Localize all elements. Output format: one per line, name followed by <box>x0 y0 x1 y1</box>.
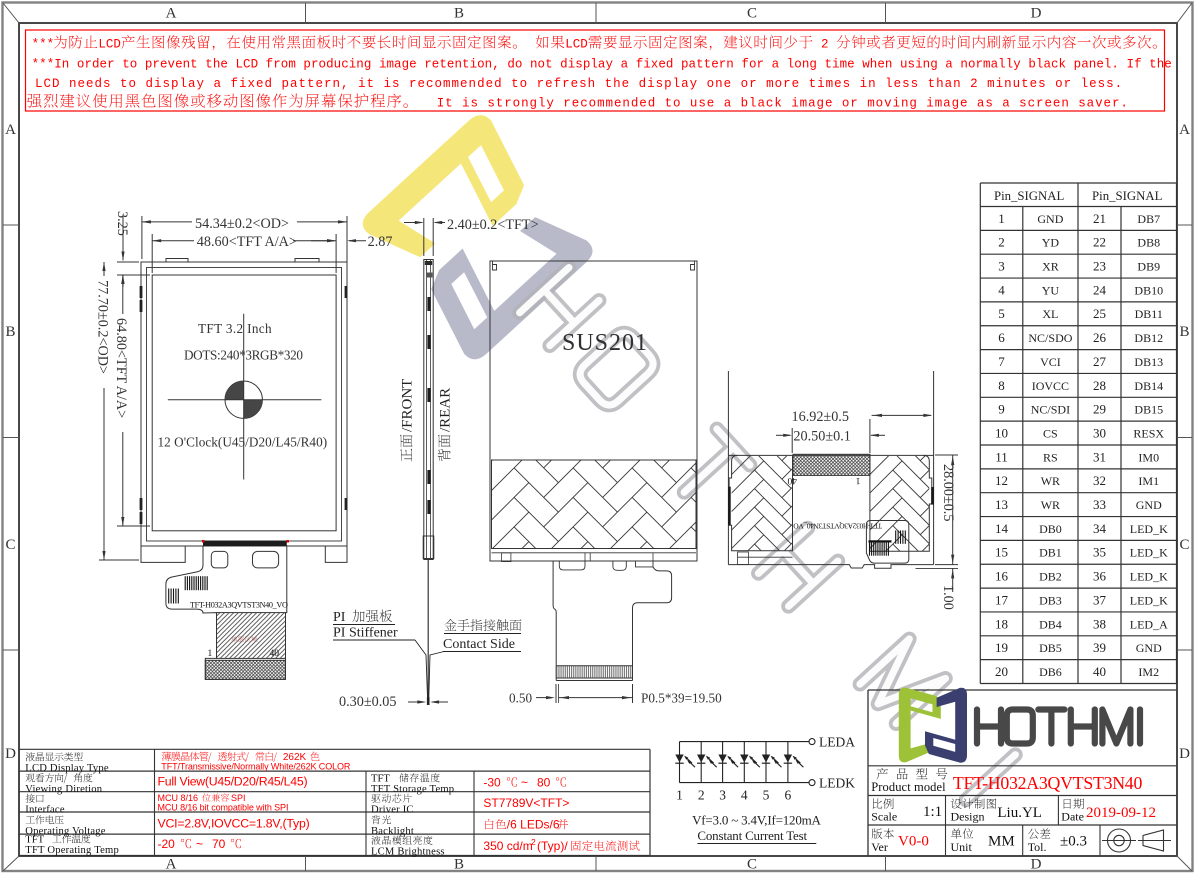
svg-text:35: 35 <box>1093 545 1106 560</box>
svg-text:D: D <box>1179 746 1190 762</box>
svg-text:WR: WR <box>1041 474 1060 488</box>
svg-text:Viewing Diretion: Viewing Diretion <box>25 784 103 795</box>
svg-text:Design: Design <box>951 810 985 824</box>
svg-text:2019-09-12: 2019-09-12 <box>1086 805 1156 821</box>
svg-text:28.00±0.5: 28.00±0.5 <box>940 464 956 521</box>
svg-text:17: 17 <box>995 592 1009 607</box>
svg-text:39: 39 <box>1093 640 1106 655</box>
svg-text:C: C <box>747 857 757 873</box>
svg-text:DB8: DB8 <box>1137 236 1160 250</box>
svg-text:LCM Brightness: LCM Brightness <box>371 846 445 857</box>
svg-text:/FRONT: /FRONT <box>400 379 416 432</box>
svg-text:D: D <box>5 746 16 762</box>
svg-text:3: 3 <box>719 788 726 803</box>
svg-text:DB2: DB2 <box>1039 570 1062 584</box>
svg-text:LED_K: LED_K <box>1130 522 1168 536</box>
svg-text:11: 11 <box>995 449 1008 464</box>
svg-text:16: 16 <box>995 569 1009 584</box>
svg-text:Tol.: Tol. <box>1028 840 1047 854</box>
svg-text:It is strongly recommended to: It is strongly recommended to use a blac… <box>437 97 1129 111</box>
svg-text:PI Stiffener: PI Stiffener <box>333 626 398 641</box>
svg-text:28: 28 <box>1093 378 1106 393</box>
svg-text:31: 31 <box>1093 449 1106 464</box>
svg-text:YU: YU <box>1042 283 1060 297</box>
svg-text:33: 33 <box>1093 497 1106 512</box>
svg-text:B: B <box>454 857 464 873</box>
svg-text:26: 26 <box>1093 330 1107 345</box>
svg-text:25: 25 <box>1093 306 1106 321</box>
svg-text:LEDK: LEDK <box>819 776 855 791</box>
svg-text:A: A <box>1179 122 1190 138</box>
svg-text:20.50±0.1: 20.50±0.1 <box>793 428 850 444</box>
svg-text:6: 6 <box>998 330 1005 345</box>
svg-text:IM1: IM1 <box>1138 474 1159 488</box>
svg-text:36: 36 <box>1093 569 1107 584</box>
svg-text:PI: PI <box>333 610 349 625</box>
svg-text:A: A <box>5 122 16 138</box>
svg-text:5: 5 <box>763 788 770 803</box>
svg-text:MCU 8/16: MCU 8/16 <box>158 793 201 803</box>
svg-text:/REAR: /REAR <box>438 388 454 432</box>
svg-text:SPI: SPI <box>231 793 246 803</box>
svg-text:IOVCC: IOVCC <box>1032 379 1069 393</box>
svg-text:/6 LEDs/6: /6 LEDs/6 <box>507 818 560 832</box>
svg-text:Constant Current Test: Constant Current Test <box>697 828 807 843</box>
svg-text:-30: -30 <box>483 776 504 790</box>
svg-text:YD: YD <box>1042 236 1060 250</box>
svg-text:DB13: DB13 <box>1134 355 1163 369</box>
svg-text:48.60<TFT A/A>: 48.60<TFT A/A> <box>197 234 297 250</box>
svg-text:ST7789V<TFT>: ST7789V<TFT> <box>483 796 569 810</box>
svg-text:1.00: 1.00 <box>940 585 956 610</box>
svg-text:Contact Side: Contact Side <box>443 637 515 652</box>
svg-text:DB0: DB0 <box>1039 522 1062 536</box>
svg-text:TFT 3.2 Inch: TFT 3.2 Inch <box>198 321 272 336</box>
svg-text:15: 15 <box>995 545 1008 560</box>
svg-text:4: 4 <box>998 282 1005 297</box>
svg-text:7: 7 <box>998 354 1005 369</box>
svg-text:Interface: Interface <box>25 804 65 815</box>
svg-text:NC/SDO: NC/SDO <box>1028 331 1072 345</box>
svg-text:Scale: Scale <box>871 810 897 824</box>
svg-text:MCU 8/16 bit compatible with S: MCU 8/16 bit compatible with SPI <box>158 803 289 813</box>
svg-text:2.87: 2.87 <box>368 234 393 250</box>
svg-text:CS: CS <box>1043 426 1058 440</box>
svg-text:TFT-H032A3QVTST3N40_VO: TFT-H032A3QVTST3N40_VO <box>793 522 882 531</box>
svg-text:8: 8 <box>998 378 1005 393</box>
svg-text:B: B <box>5 324 15 340</box>
svg-text:-20: -20 <box>158 837 179 851</box>
svg-text:DB1: DB1 <box>1039 546 1062 560</box>
svg-text:2: 2 <box>814 38 837 52</box>
svg-text:1:1: 1:1 <box>923 804 942 820</box>
svg-text:77.70±0.2<OD>: 77.70±0.2<OD> <box>95 280 111 374</box>
svg-text:9: 9 <box>998 402 1005 417</box>
svg-text:DB6: DB6 <box>1039 665 1062 679</box>
svg-text:14: 14 <box>995 521 1009 536</box>
svg-text:LED_K: LED_K <box>1130 570 1168 584</box>
svg-text:37: 37 <box>1093 592 1107 607</box>
svg-text:21: 21 <box>1093 211 1106 226</box>
svg-text:54.34±0.2<OD>: 54.34±0.2<OD> <box>195 216 289 232</box>
svg-text:LED_K: LED_K <box>1130 546 1168 560</box>
svg-text:***: *** <box>32 38 55 52</box>
svg-text:GND: GND <box>1136 641 1162 655</box>
svg-text:LCD: LCD <box>565 38 588 52</box>
svg-text:DB14: DB14 <box>1134 379 1163 393</box>
svg-text:Liu.YL: Liu.YL <box>997 805 1042 821</box>
svg-text:Driver IC: Driver IC <box>371 804 414 815</box>
svg-text:DB11: DB11 <box>1135 307 1163 321</box>
svg-text:~: ~ <box>521 776 528 790</box>
svg-text:5: 5 <box>998 306 1005 321</box>
svg-text:DB12: DB12 <box>1134 331 1163 345</box>
svg-text:3: 3 <box>998 259 1005 274</box>
svg-text:Backlight: Backlight <box>371 826 414 837</box>
svg-text:3.25: 3.25 <box>114 211 130 236</box>
svg-text:C: C <box>5 537 15 553</box>
svg-text:40: 40 <box>787 475 797 485</box>
svg-text:C: C <box>747 6 757 22</box>
svg-text:Pin_SIGNAL: Pin_SIGNAL <box>994 189 1065 203</box>
svg-text:***In order to prevent the LCD: ***In order to prevent the LCD from prod… <box>32 57 1172 71</box>
svg-text:38: 38 <box>1093 616 1106 631</box>
svg-text:0.50: 0.50 <box>509 691 532 706</box>
svg-text:Unit: Unit <box>951 840 973 854</box>
svg-text:40: 40 <box>1093 664 1106 679</box>
svg-text:29: 29 <box>1093 402 1106 417</box>
svg-text:LCD Display Type: LCD Display Type <box>25 763 109 774</box>
svg-text:A: A <box>166 6 177 22</box>
svg-text:DB4: DB4 <box>1039 617 1062 631</box>
svg-text:LCD needs to display a fixed p: LCD needs to display a fixed pattern, it… <box>35 77 1123 91</box>
svg-text:DB9: DB9 <box>1137 260 1160 274</box>
svg-text:TFT Storage Temp: TFT Storage Temp <box>371 784 454 795</box>
svg-text:A: A <box>166 857 177 873</box>
svg-text:10: 10 <box>995 425 1008 440</box>
svg-text:±0.3: ±0.3 <box>1060 834 1087 850</box>
svg-text:22: 22 <box>1093 235 1106 250</box>
svg-text:2.40±0.2<TFT>: 2.40±0.2<TFT> <box>447 217 539 233</box>
svg-text:80: 80 <box>537 776 554 790</box>
svg-text:Date: Date <box>1061 810 1084 824</box>
svg-text:2: 2 <box>998 235 1005 250</box>
svg-text:1: 1 <box>998 211 1005 226</box>
svg-text:4: 4 <box>741 788 748 803</box>
svg-text:GND: GND <box>1136 498 1162 512</box>
svg-text:~: ~ <box>196 837 203 851</box>
svg-text:20: 20 <box>995 664 1008 679</box>
svg-text:TFT-H032A3QVTST3N40: TFT-H032A3QVTST3N40 <box>953 773 1143 793</box>
svg-text:B: B <box>1179 324 1189 340</box>
svg-text:B: B <box>454 6 464 22</box>
svg-text:DB5: DB5 <box>1039 641 1062 655</box>
svg-text:Vf=3.0 ~ 3.4V,If=120mA: Vf=3.0 ~ 3.4V,If=120mA <box>692 813 821 828</box>
svg-text:DB10: DB10 <box>1134 283 1163 297</box>
svg-text:18: 18 <box>995 616 1008 631</box>
svg-text:V0-0: V0-0 <box>898 834 929 850</box>
svg-text:IM2: IM2 <box>1138 665 1159 679</box>
svg-text:27: 27 <box>1093 354 1107 369</box>
svg-text:32: 32 <box>1093 473 1106 488</box>
svg-text:Pin_SIGNAL: Pin_SIGNAL <box>1092 189 1163 203</box>
svg-text:RS: RS <box>1043 450 1058 464</box>
svg-text:DB15: DB15 <box>1134 403 1163 417</box>
svg-text:DB3: DB3 <box>1039 593 1062 607</box>
svg-text:MM: MM <box>988 834 1015 850</box>
svg-text:SUS201: SUS201 <box>562 330 648 356</box>
svg-text:DB7: DB7 <box>1137 212 1160 226</box>
svg-text:2: 2 <box>698 788 705 803</box>
svg-text:6: 6 <box>785 788 792 803</box>
svg-text:LED_A: LED_A <box>1130 617 1168 631</box>
svg-text:XL: XL <box>1042 307 1058 321</box>
svg-text:1: 1 <box>856 475 861 485</box>
svg-text:30: 30 <box>1093 425 1106 440</box>
svg-text:TFT/Transmissive/Normally Whit: TFT/Transmissive/Normally White/262K COL… <box>161 762 351 772</box>
svg-text:WR: WR <box>1041 498 1060 512</box>
svg-text:VCI: VCI <box>1040 355 1061 369</box>
svg-text:GND: GND <box>1037 212 1063 226</box>
svg-text:19: 19 <box>995 640 1008 655</box>
svg-text:40: 40 <box>270 649 280 659</box>
svg-text:(Typ)/: (Typ)/ <box>537 839 568 853</box>
svg-text:12 O'Clock(U45/D20/L45/R40): 12 O'Clock(U45/D20/L45/R40) <box>158 435 328 450</box>
svg-text:D: D <box>1031 857 1042 873</box>
svg-text:2: 2 <box>531 837 536 847</box>
svg-text:24: 24 <box>1093 282 1107 297</box>
svg-text:TFT Operating Temp: TFT Operating Temp <box>25 845 119 856</box>
svg-text:IM0: IM0 <box>1138 450 1159 464</box>
svg-text:VCI=2.8V,IOVCC=1.8V,(Typ): VCI=2.8V,IOVCC=1.8V,(Typ) <box>158 817 310 831</box>
svg-text:Full View(U45/D20/R45/L45): Full View(U45/D20/R45/L45) <box>158 775 308 789</box>
svg-text:13: 13 <box>995 497 1008 512</box>
svg-text:LEDA: LEDA <box>819 735 855 750</box>
svg-text:NC/SDI: NC/SDI <box>1031 403 1070 417</box>
svg-text:LED_K: LED_K <box>1130 593 1168 607</box>
svg-text:64.80<TFT A/A>: 64.80<TFT A/A> <box>113 318 129 418</box>
svg-text:16.92±0.5: 16.92±0.5 <box>792 409 849 425</box>
svg-text:LCD: LCD <box>98 38 121 52</box>
svg-text:Ver: Ver <box>871 840 888 854</box>
svg-text:C: C <box>1179 537 1189 553</box>
svg-text:Product model: Product model <box>871 780 946 794</box>
svg-text:12: 12 <box>995 473 1008 488</box>
svg-text:23: 23 <box>1093 259 1106 274</box>
svg-text:350 cd/m: 350 cd/m <box>483 839 532 853</box>
svg-text:RESX: RESX <box>1133 426 1164 440</box>
svg-text:1: 1 <box>208 649 213 659</box>
svg-text:1: 1 <box>676 788 683 803</box>
svg-text:34: 34 <box>1093 521 1107 536</box>
svg-text:D: D <box>1031 6 1042 22</box>
svg-text:70: 70 <box>212 837 229 851</box>
svg-text:XR: XR <box>1042 260 1059 274</box>
svg-text:TFT-H032A3QVTST3N40_VO: TFT-H032A3QVTST3N40_VO <box>190 601 288 610</box>
svg-text:P0.5*39=19.50: P0.5*39=19.50 <box>641 691 722 706</box>
svg-text:0.30±0.05: 0.30±0.05 <box>339 694 396 710</box>
